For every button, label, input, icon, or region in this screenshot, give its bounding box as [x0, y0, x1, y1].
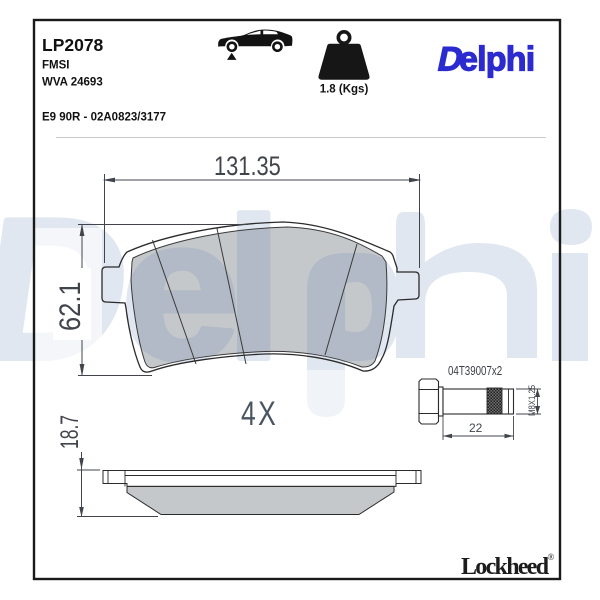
svg-text:E9 90R - 02A0823/3177: E9 90R - 02A0823/3177: [42, 112, 166, 124]
svg-text:e: e: [121, 177, 240, 400]
svg-text:®: ®: [548, 552, 555, 562]
svg-text:LP2078: LP2078: [42, 35, 104, 55]
svg-text:4X: 4X: [241, 395, 278, 433]
svg-text:l: l: [226, 178, 282, 401]
svg-text:elphi: elphi: [459, 41, 534, 79]
svg-text:M8X1.25: M8X1.25: [526, 385, 537, 416]
svg-text:18.7: 18.7: [55, 415, 84, 449]
svg-text:WVA 24693: WVA 24693: [42, 77, 103, 89]
svg-text:62.1: 62.1: [53, 281, 86, 331]
svg-text:04T39007x2: 04T39007x2: [448, 365, 502, 379]
svg-text:1.8 (Kgs): 1.8 (Kgs): [320, 84, 369, 96]
svg-text:131.35: 131.35: [214, 152, 281, 182]
svg-text:FMSI: FMSI: [42, 60, 69, 72]
svg-text:22: 22: [469, 421, 483, 435]
svg-text:Lockheed: Lockheed: [461, 554, 550, 580]
